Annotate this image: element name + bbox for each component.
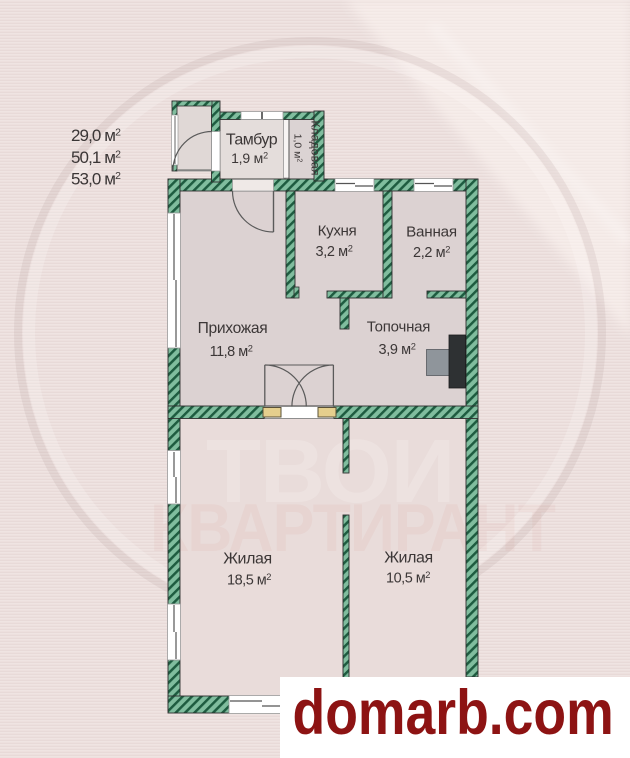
svg-text:Тамбур: Тамбур — [226, 132, 278, 149]
svg-text:53,0 м2: 53,0 м2 — [71, 170, 121, 189]
svg-text:50,1 м2: 50,1 м2 — [71, 148, 121, 167]
svg-text:Жилая: Жилая — [223, 551, 272, 568]
svg-text:domarb.com: domarb.com — [293, 678, 614, 748]
svg-text:29,0 м2: 29,0 м2 — [71, 126, 121, 145]
svg-text:Ванная: Ванная — [406, 224, 457, 241]
svg-text:1,0 м2: 1,0 м2 — [292, 134, 304, 163]
svg-text:Прихожая: Прихожая — [198, 320, 268, 337]
svg-text:18,5 м2: 18,5 м2 — [227, 572, 271, 589]
svg-text:11,8 м2: 11,8 м2 — [210, 344, 253, 361]
svg-text:2,2 м2: 2,2 м2 — [413, 245, 450, 262]
svg-text:1,9 м2: 1,9 м2 — [231, 150, 268, 166]
svg-text:Кладовая: Кладовая — [309, 120, 323, 175]
svg-text:Кухня: Кухня — [318, 223, 357, 240]
svg-text:3,9 м2: 3,9 м2 — [379, 342, 416, 359]
svg-text:Топочная: Топочная — [367, 319, 431, 336]
svg-text:Жилая: Жилая — [384, 550, 433, 567]
svg-text:КВАРТИРАНТ: КВАРТИРАНТ — [150, 490, 556, 566]
svg-text:10,5 м2: 10,5 м2 — [386, 570, 430, 587]
svg-text:3,2 м2: 3,2 м2 — [316, 244, 353, 261]
